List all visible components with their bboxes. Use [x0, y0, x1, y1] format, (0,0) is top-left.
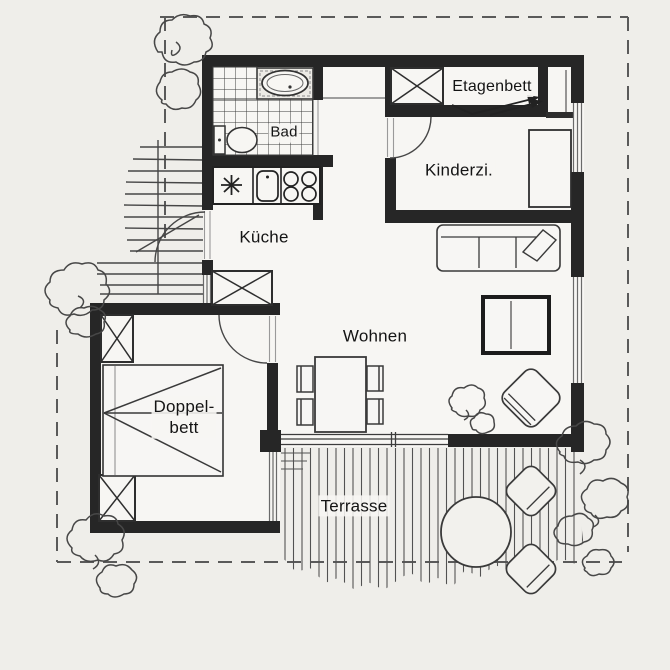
wall-bunk-right: [538, 67, 548, 117]
toilet: [214, 126, 257, 154]
room-label-kinderzimmer: Kinderzi.: [423, 159, 495, 180]
terrace-glass-door: [281, 432, 448, 447]
wardrobe-entry: [212, 271, 272, 305]
floor-plan-page: Bad Etagenbett Kinderzi. Küche Wohnen Do…: [0, 0, 670, 670]
nightstand-bottom: [99, 475, 135, 521]
bunk-niche-shelf: [546, 112, 573, 118]
room-label-doppelbett: Doppel- bett: [152, 396, 217, 439]
wall-west-upper: [202, 55, 213, 210]
wall-bedroom-south: [90, 521, 280, 533]
bathtub: [257, 68, 313, 99]
wall-east-2: [571, 172, 584, 277]
bath-tiles: [213, 67, 257, 99]
room-label-doppelbett-line1: Doppel-: [154, 396, 215, 417]
sink-drain-symbol: [221, 175, 242, 195]
wall-bath-east: [313, 67, 323, 100]
nightstand-top: [101, 315, 133, 362]
sofa: [437, 225, 560, 271]
room-label-doppelbett-line2: bett: [154, 417, 215, 438]
wall-south-right: [448, 434, 584, 447]
floor-plan-drawing: [0, 0, 670, 670]
wardrobe-kinderzimmer: [529, 130, 571, 207]
wall-east-1: [571, 55, 584, 103]
wall-bath-south: [203, 155, 333, 167]
room-label-bad: Bad: [268, 124, 299, 143]
wardrobe-bunk-room: [391, 68, 443, 104]
room-label-etagenbett: Etagenbett: [450, 77, 533, 97]
terrace-round-table: [441, 497, 511, 567]
room-label-wohnen: Wohnen: [341, 325, 409, 346]
wall-kinderzimmer-south: [385, 210, 571, 223]
kitchen-sink: [257, 171, 278, 201]
wall-bedroom-east: [267, 363, 278, 452]
kitchen-fixtures: [213, 167, 320, 204]
room-label-kueche: Küche: [237, 226, 290, 247]
dining-table: [315, 357, 366, 432]
room-label-terrasse: Terrasse: [319, 495, 390, 516]
side-table: [483, 297, 549, 353]
